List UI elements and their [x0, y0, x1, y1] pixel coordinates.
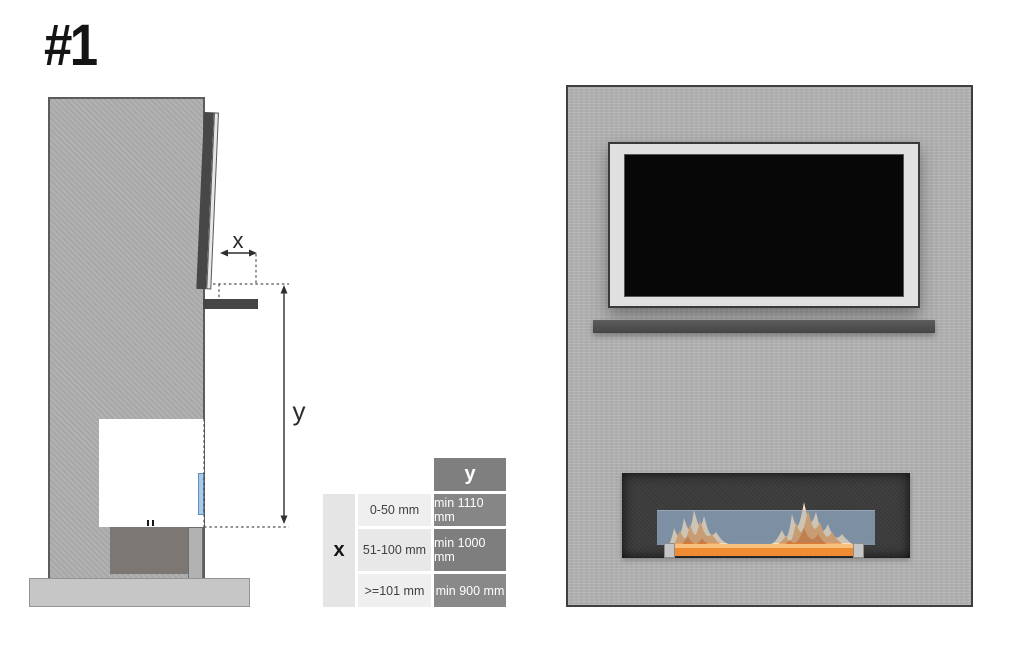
fireplace-glass-side [198, 473, 204, 515]
glass-tint-overlay [657, 510, 875, 543]
burner-foot [853, 543, 864, 558]
y-dimension-label: y [293, 396, 306, 426]
burner-block-side [110, 527, 188, 574]
clearance-table: y x 0-50 mm min 1110 mm 51-100 mm min 10… [323, 458, 506, 607]
hearth-lip-side [188, 527, 203, 578]
construction-lines [204, 254, 289, 527]
table-range-cell: 0-50 mm [358, 494, 431, 526]
table-value-cell: min 1000 mm [434, 529, 506, 571]
installation-diagram-page: #1 [0, 0, 1024, 654]
burner-tick-mark [152, 520, 154, 526]
front-shelf [593, 320, 935, 333]
fireplace-opening-side [99, 419, 204, 527]
burner-tick-mark [147, 520, 149, 526]
table-row-header-x: x [323, 494, 355, 607]
table-col-header-y: y [434, 458, 506, 491]
front-tv-screen [624, 154, 904, 297]
figure-number-label: #1 [44, 12, 95, 79]
table-range-cell: 51-100 mm [358, 529, 431, 571]
x-dimension-arrow [220, 250, 257, 257]
ember-highlight [664, 544, 862, 548]
burner-foot [664, 543, 675, 558]
table-range-cell: >=101 mm [358, 574, 431, 607]
floor-base-side [29, 578, 250, 607]
table-value-cell: min 900 mm [434, 574, 506, 607]
y-dimension-arrow [281, 285, 288, 524]
side-shelf [203, 299, 258, 309]
front-tv [608, 142, 920, 308]
table-value-cell: min 1110 mm [434, 494, 506, 526]
x-dimension-label: x [233, 228, 244, 253]
